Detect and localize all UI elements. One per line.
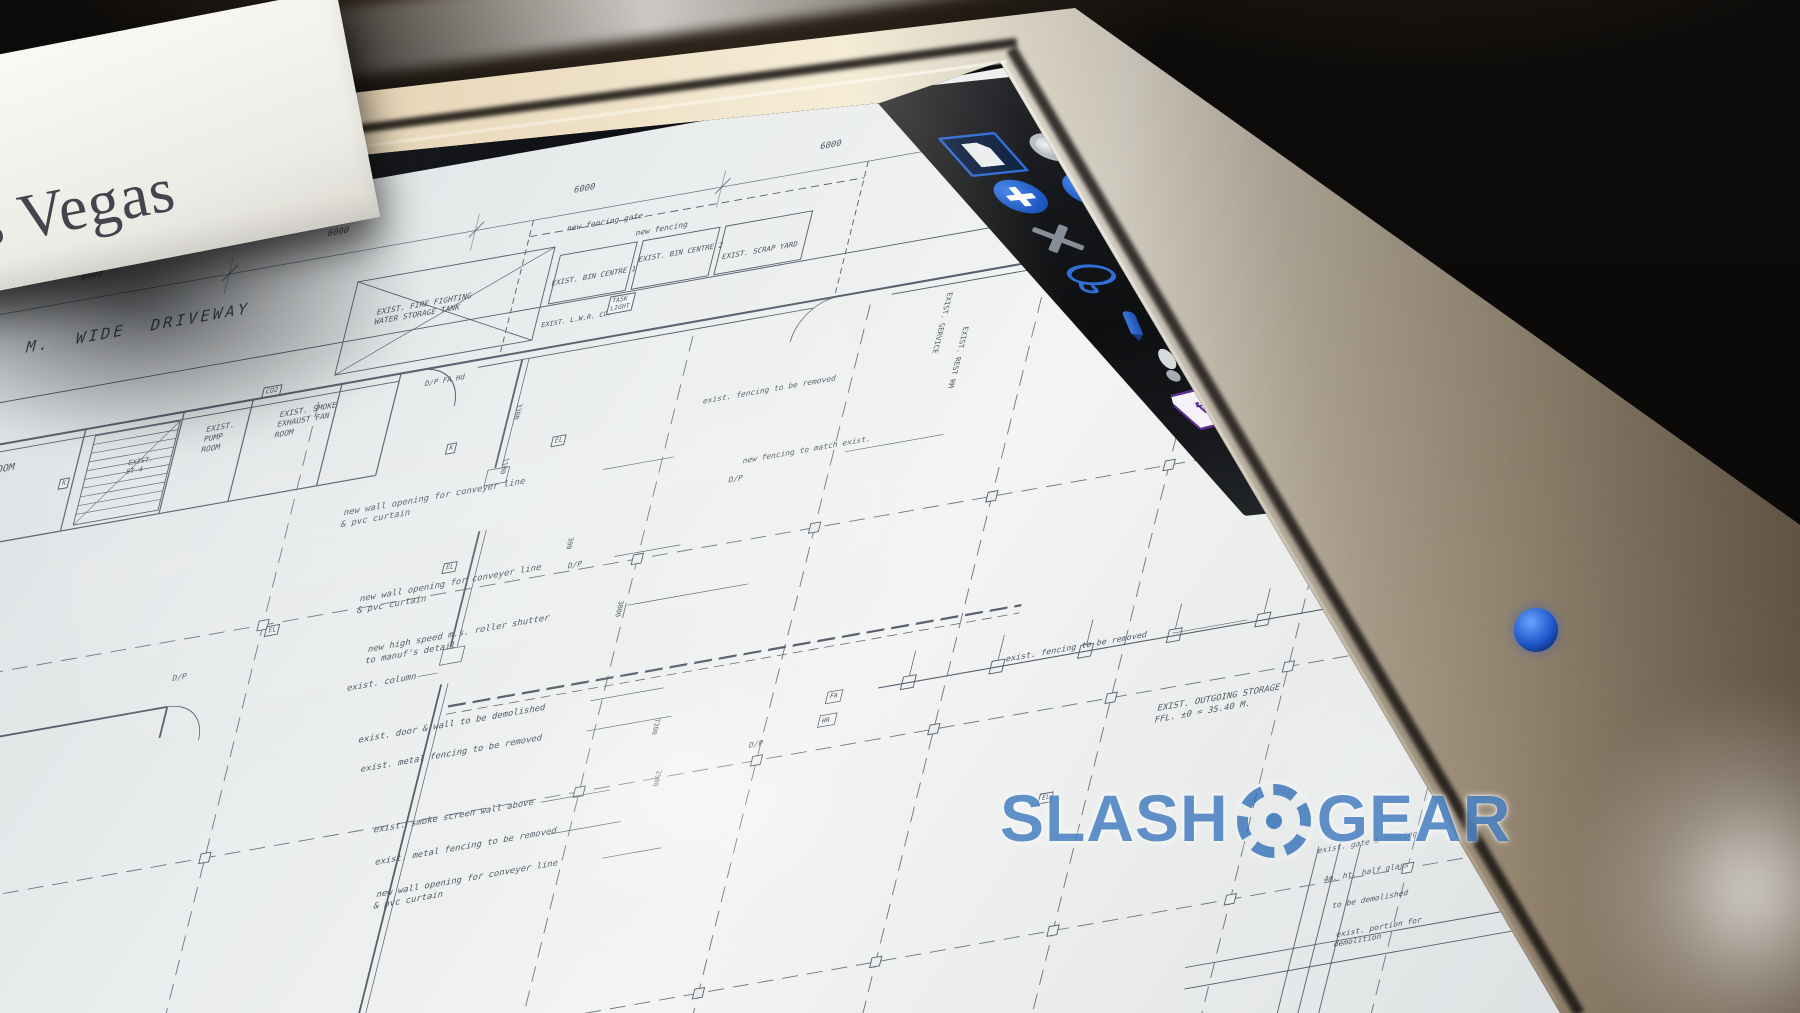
slashgear-watermark: SLASH GEAR (1000, 778, 1511, 858)
watermark-left-text: SLASH (1000, 780, 1229, 856)
bezel-reflection (1570, 690, 1800, 1013)
glass-glare-spot (470, 640, 890, 940)
blue-round-marker (1514, 608, 1558, 652)
sign-text: as Vegas (0, 152, 181, 268)
pen-icon (1121, 311, 1143, 336)
gear-icon (1237, 784, 1311, 858)
photo-stage: 600060006000600060006000M. WIDE DRIVEWAY… (0, 0, 1800, 1013)
watermark-right-text: GEAR (1317, 780, 1512, 856)
x-icon (1025, 222, 1091, 255)
